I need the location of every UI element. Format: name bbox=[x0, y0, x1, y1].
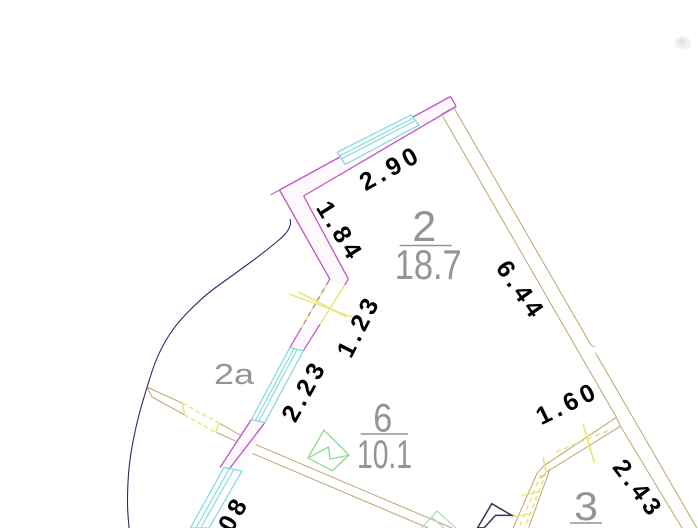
svg-text:10.1: 10.1 bbox=[357, 433, 412, 477]
svg-text:2a: 2a bbox=[214, 359, 255, 391]
svg-text:18.7: 18.7 bbox=[395, 241, 462, 288]
svg-text:3: 3 bbox=[574, 485, 598, 528]
